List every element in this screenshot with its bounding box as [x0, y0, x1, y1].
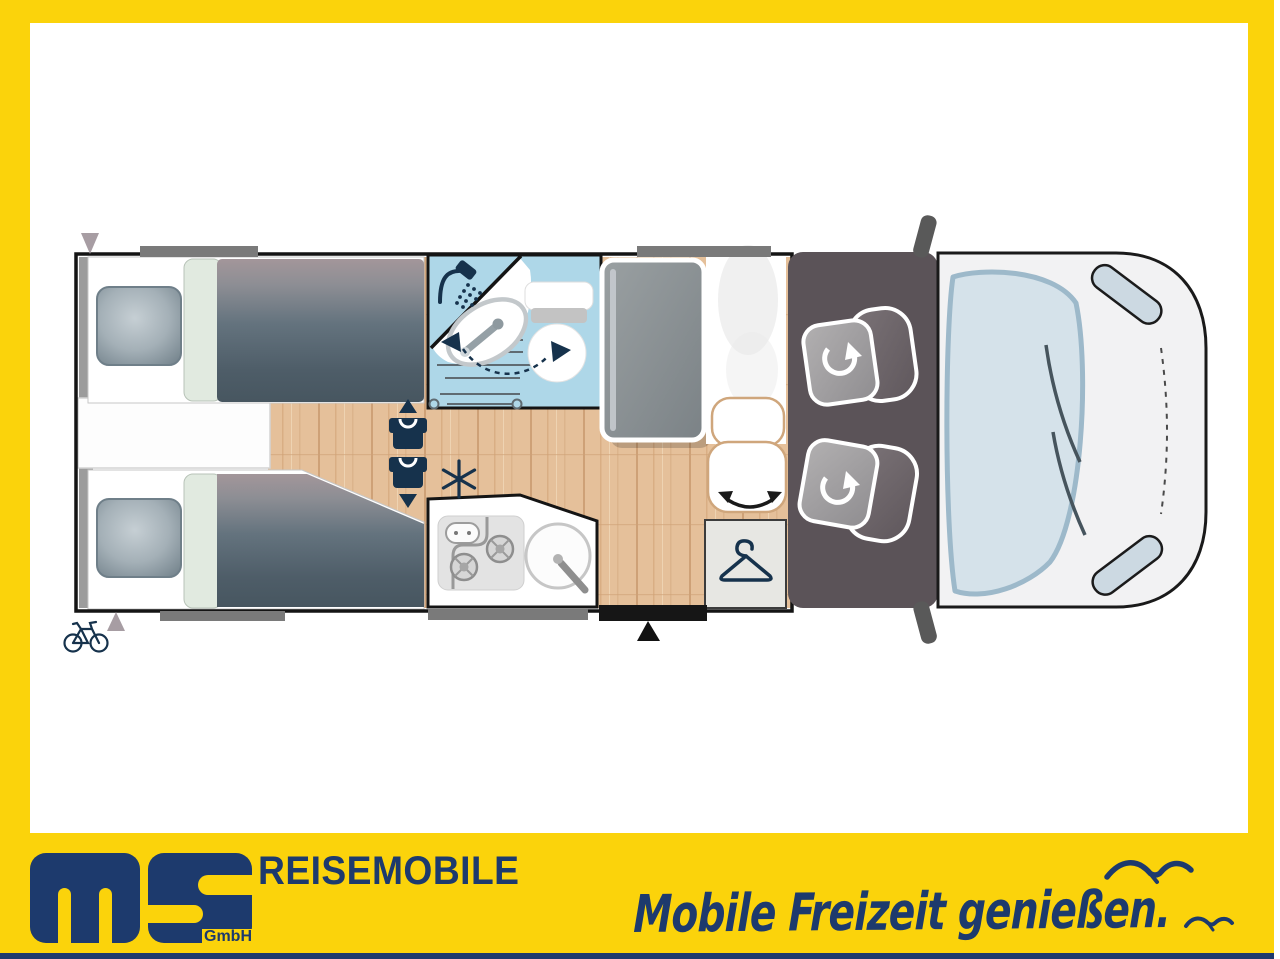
kitchen	[428, 495, 597, 607]
duvet	[217, 259, 424, 402]
seat-cushion	[797, 437, 880, 530]
headboard	[184, 259, 222, 401]
twin-bed-top	[88, 257, 424, 403]
frame-left	[0, 0, 30, 953]
bike-rack-icon	[65, 622, 108, 652]
seat-cushion	[801, 318, 879, 407]
travel-seat-icon	[389, 418, 427, 449]
page: GmbH REISEMOBILE Mobile Freizeit genieße…	[0, 0, 1280, 959]
headboard	[184, 474, 222, 608]
service-hatch-bar	[428, 609, 588, 620]
roof-vent-bar	[140, 246, 258, 257]
wardrobe	[705, 520, 786, 608]
pillow	[97, 287, 181, 365]
cab-floor	[788, 252, 938, 608]
dinette-table	[602, 260, 712, 448]
burner	[487, 536, 513, 562]
slogan-text: Mobile Freizeit genießen.	[633, 884, 1171, 941]
entry-door-marker-icon	[637, 621, 660, 641]
brand-title: REISEMOBILE	[258, 851, 519, 891]
banner: GmbH REISEMOBILE Mobile Freizeit genieße…	[0, 833, 1274, 953]
logo-slot	[99, 888, 112, 943]
travel-seat-icon	[389, 457, 427, 488]
frame-top	[0, 0, 1274, 23]
logo-slot	[58, 888, 71, 943]
burner	[451, 554, 477, 580]
rear-marker-top-icon	[81, 233, 99, 254]
logo-slot	[148, 905, 203, 923]
logo-suffix-gmbh: GmbH	[202, 929, 254, 945]
bottom-navy-strip	[0, 953, 1274, 959]
seagull-icon-large	[1103, 853, 1195, 889]
side-bench	[706, 245, 786, 512]
bed-step-cabinet	[78, 398, 270, 468]
side-mirror-bottom-icon	[912, 600, 939, 646]
logo-slot	[198, 875, 252, 895]
seagull-icon-small	[1183, 910, 1235, 936]
logo-letter-m	[30, 853, 140, 943]
entry-door-bar	[599, 605, 707, 621]
floorplan-svg	[0, 0, 1280, 959]
bathroom	[428, 255, 601, 409]
roof-vent-bar	[637, 246, 771, 257]
side-mirror-top-icon	[912, 214, 939, 260]
frame-right	[1248, 0, 1274, 953]
frame-right-sliver	[1274, 0, 1280, 959]
pillow	[97, 499, 181, 577]
rear-marker-bottom-icon	[107, 612, 125, 631]
service-hatch-bar	[160, 611, 285, 621]
